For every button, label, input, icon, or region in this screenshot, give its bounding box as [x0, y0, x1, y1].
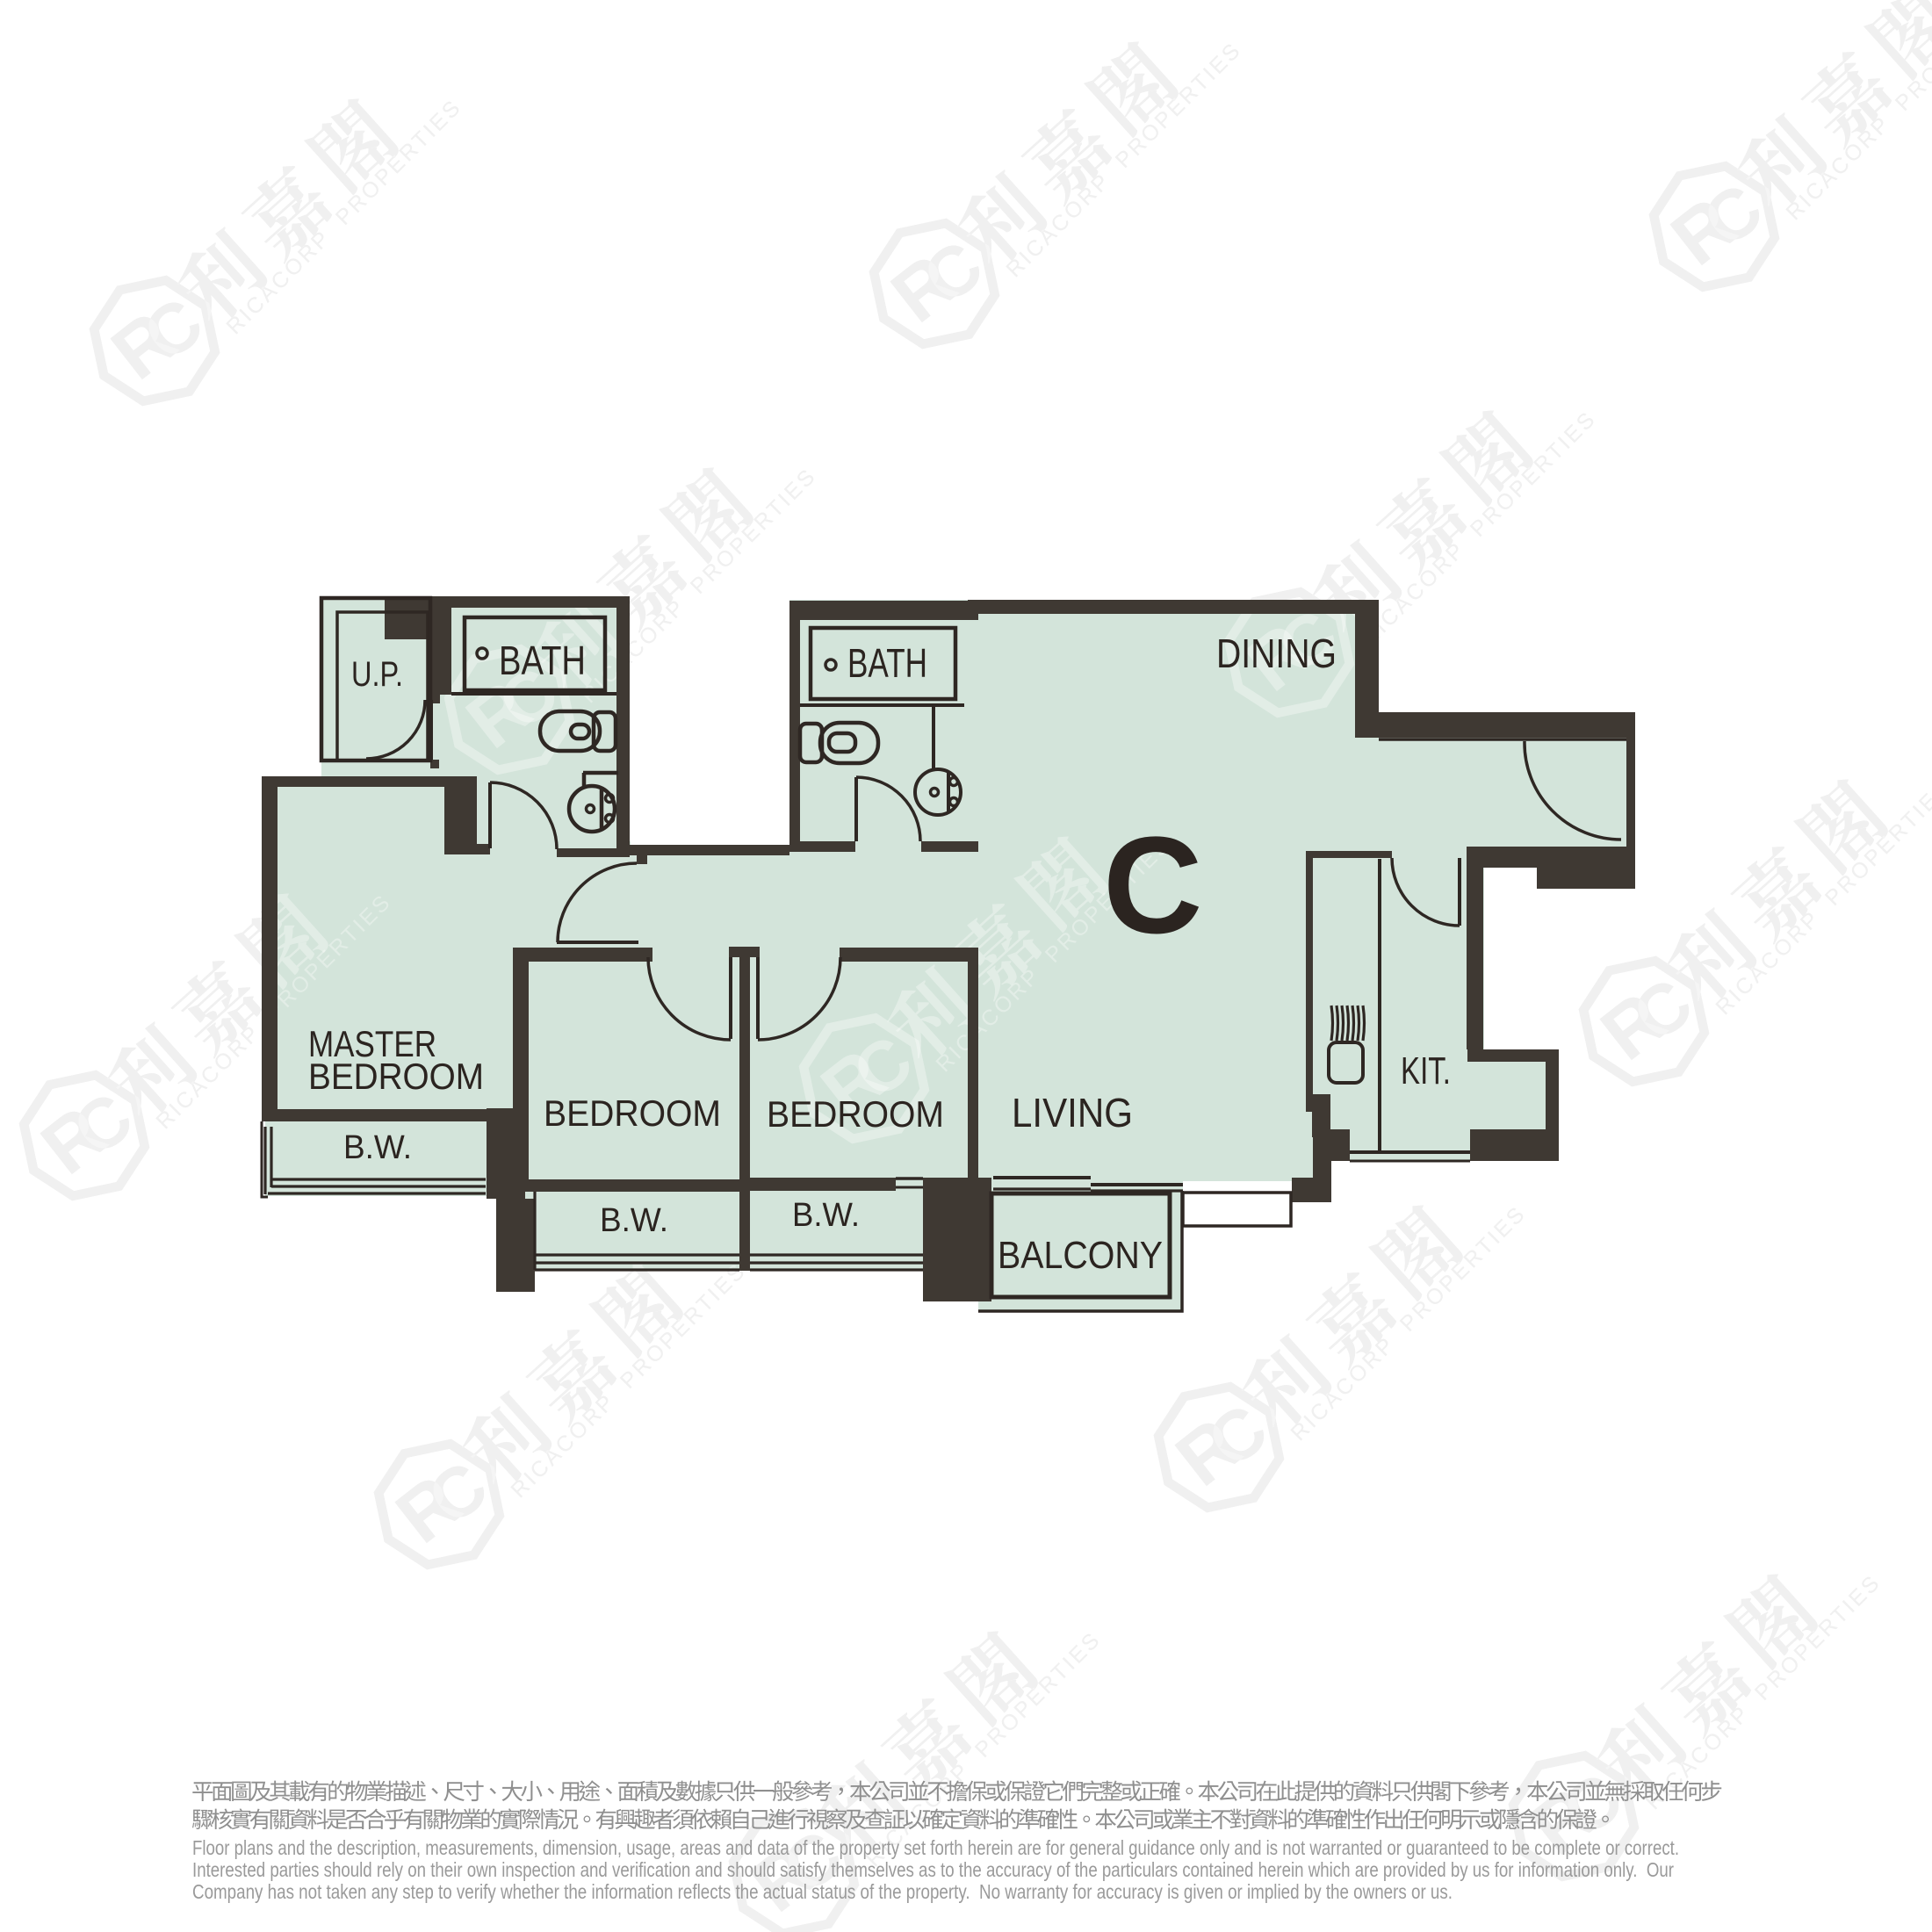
svg-text:DINING: DINING [1216, 631, 1337, 676]
svg-text:LIVING: LIVING [1012, 1090, 1133, 1135]
svg-text:Company has not taken any step: Company has not taken any step to verify… [192, 1880, 1453, 1903]
svg-text:BEDROOM: BEDROOM [308, 1056, 484, 1097]
svg-text:BEDROOM: BEDROOM [767, 1093, 944, 1135]
svg-text:KIT.: KIT. [1401, 1049, 1451, 1092]
svg-text:B.W.: B.W. [600, 1202, 668, 1239]
svg-text:BATH: BATH [499, 638, 586, 683]
svg-text:Floor plans and the descriptio: Floor plans and the description, measure… [192, 1836, 1679, 1859]
svg-text:BEDROOM: BEDROOM [544, 1092, 721, 1134]
svg-text:BATH: BATH [847, 640, 927, 686]
svg-text:Interested parties should rely: Interested parties should rely on their … [192, 1858, 1674, 1881]
svg-text:C: C [1103, 809, 1202, 962]
svg-text:U.P.: U.P. [351, 655, 403, 694]
svg-text:B.W.: B.W. [792, 1197, 860, 1234]
svg-text:BALCONY: BALCONY [998, 1234, 1163, 1277]
svg-text:B.W.: B.W. [343, 1129, 412, 1166]
